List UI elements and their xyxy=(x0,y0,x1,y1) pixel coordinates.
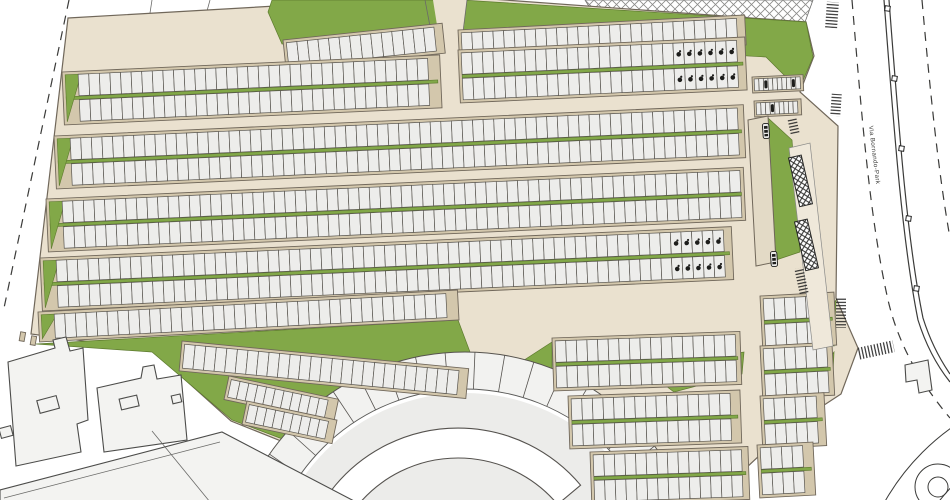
motorcycle-parking-row xyxy=(754,99,802,117)
street-lamp-icon xyxy=(899,146,905,152)
parking-row xyxy=(568,390,742,449)
parking-row xyxy=(760,342,835,399)
motorcycle-parking-row xyxy=(752,75,804,93)
street-lamp-icon xyxy=(914,286,920,292)
building-footprint xyxy=(97,365,187,452)
building-footprint xyxy=(905,360,932,393)
parking-row xyxy=(757,442,816,498)
gate-post xyxy=(19,332,25,342)
building-annex xyxy=(171,394,182,404)
bus-icon xyxy=(770,251,777,266)
site-plan-canvas[interactable]: Via Bornando-Park xyxy=(0,0,950,500)
roundabout-arcs xyxy=(855,385,950,500)
parking-row xyxy=(590,446,750,500)
street-lamp-icon xyxy=(906,216,912,222)
street-lamp-icon xyxy=(892,76,898,82)
building-annex xyxy=(0,426,13,439)
motorcycle-icon xyxy=(771,104,774,112)
parking-row xyxy=(760,393,827,449)
roadside-dashed-line xyxy=(922,0,950,238)
street-lamps xyxy=(885,6,920,292)
bus-icon xyxy=(762,123,769,138)
parking-row xyxy=(552,331,742,391)
lane-divider-line-2 xyxy=(889,0,950,374)
motorcycle-icon xyxy=(792,79,795,87)
street-lamp-icon xyxy=(885,6,891,12)
street-name-label: Via Bornando-Park xyxy=(867,125,881,185)
site-plan: Via Bornando-Park xyxy=(0,0,950,500)
motorcycle-icon xyxy=(764,80,767,88)
gate-post xyxy=(30,336,36,346)
